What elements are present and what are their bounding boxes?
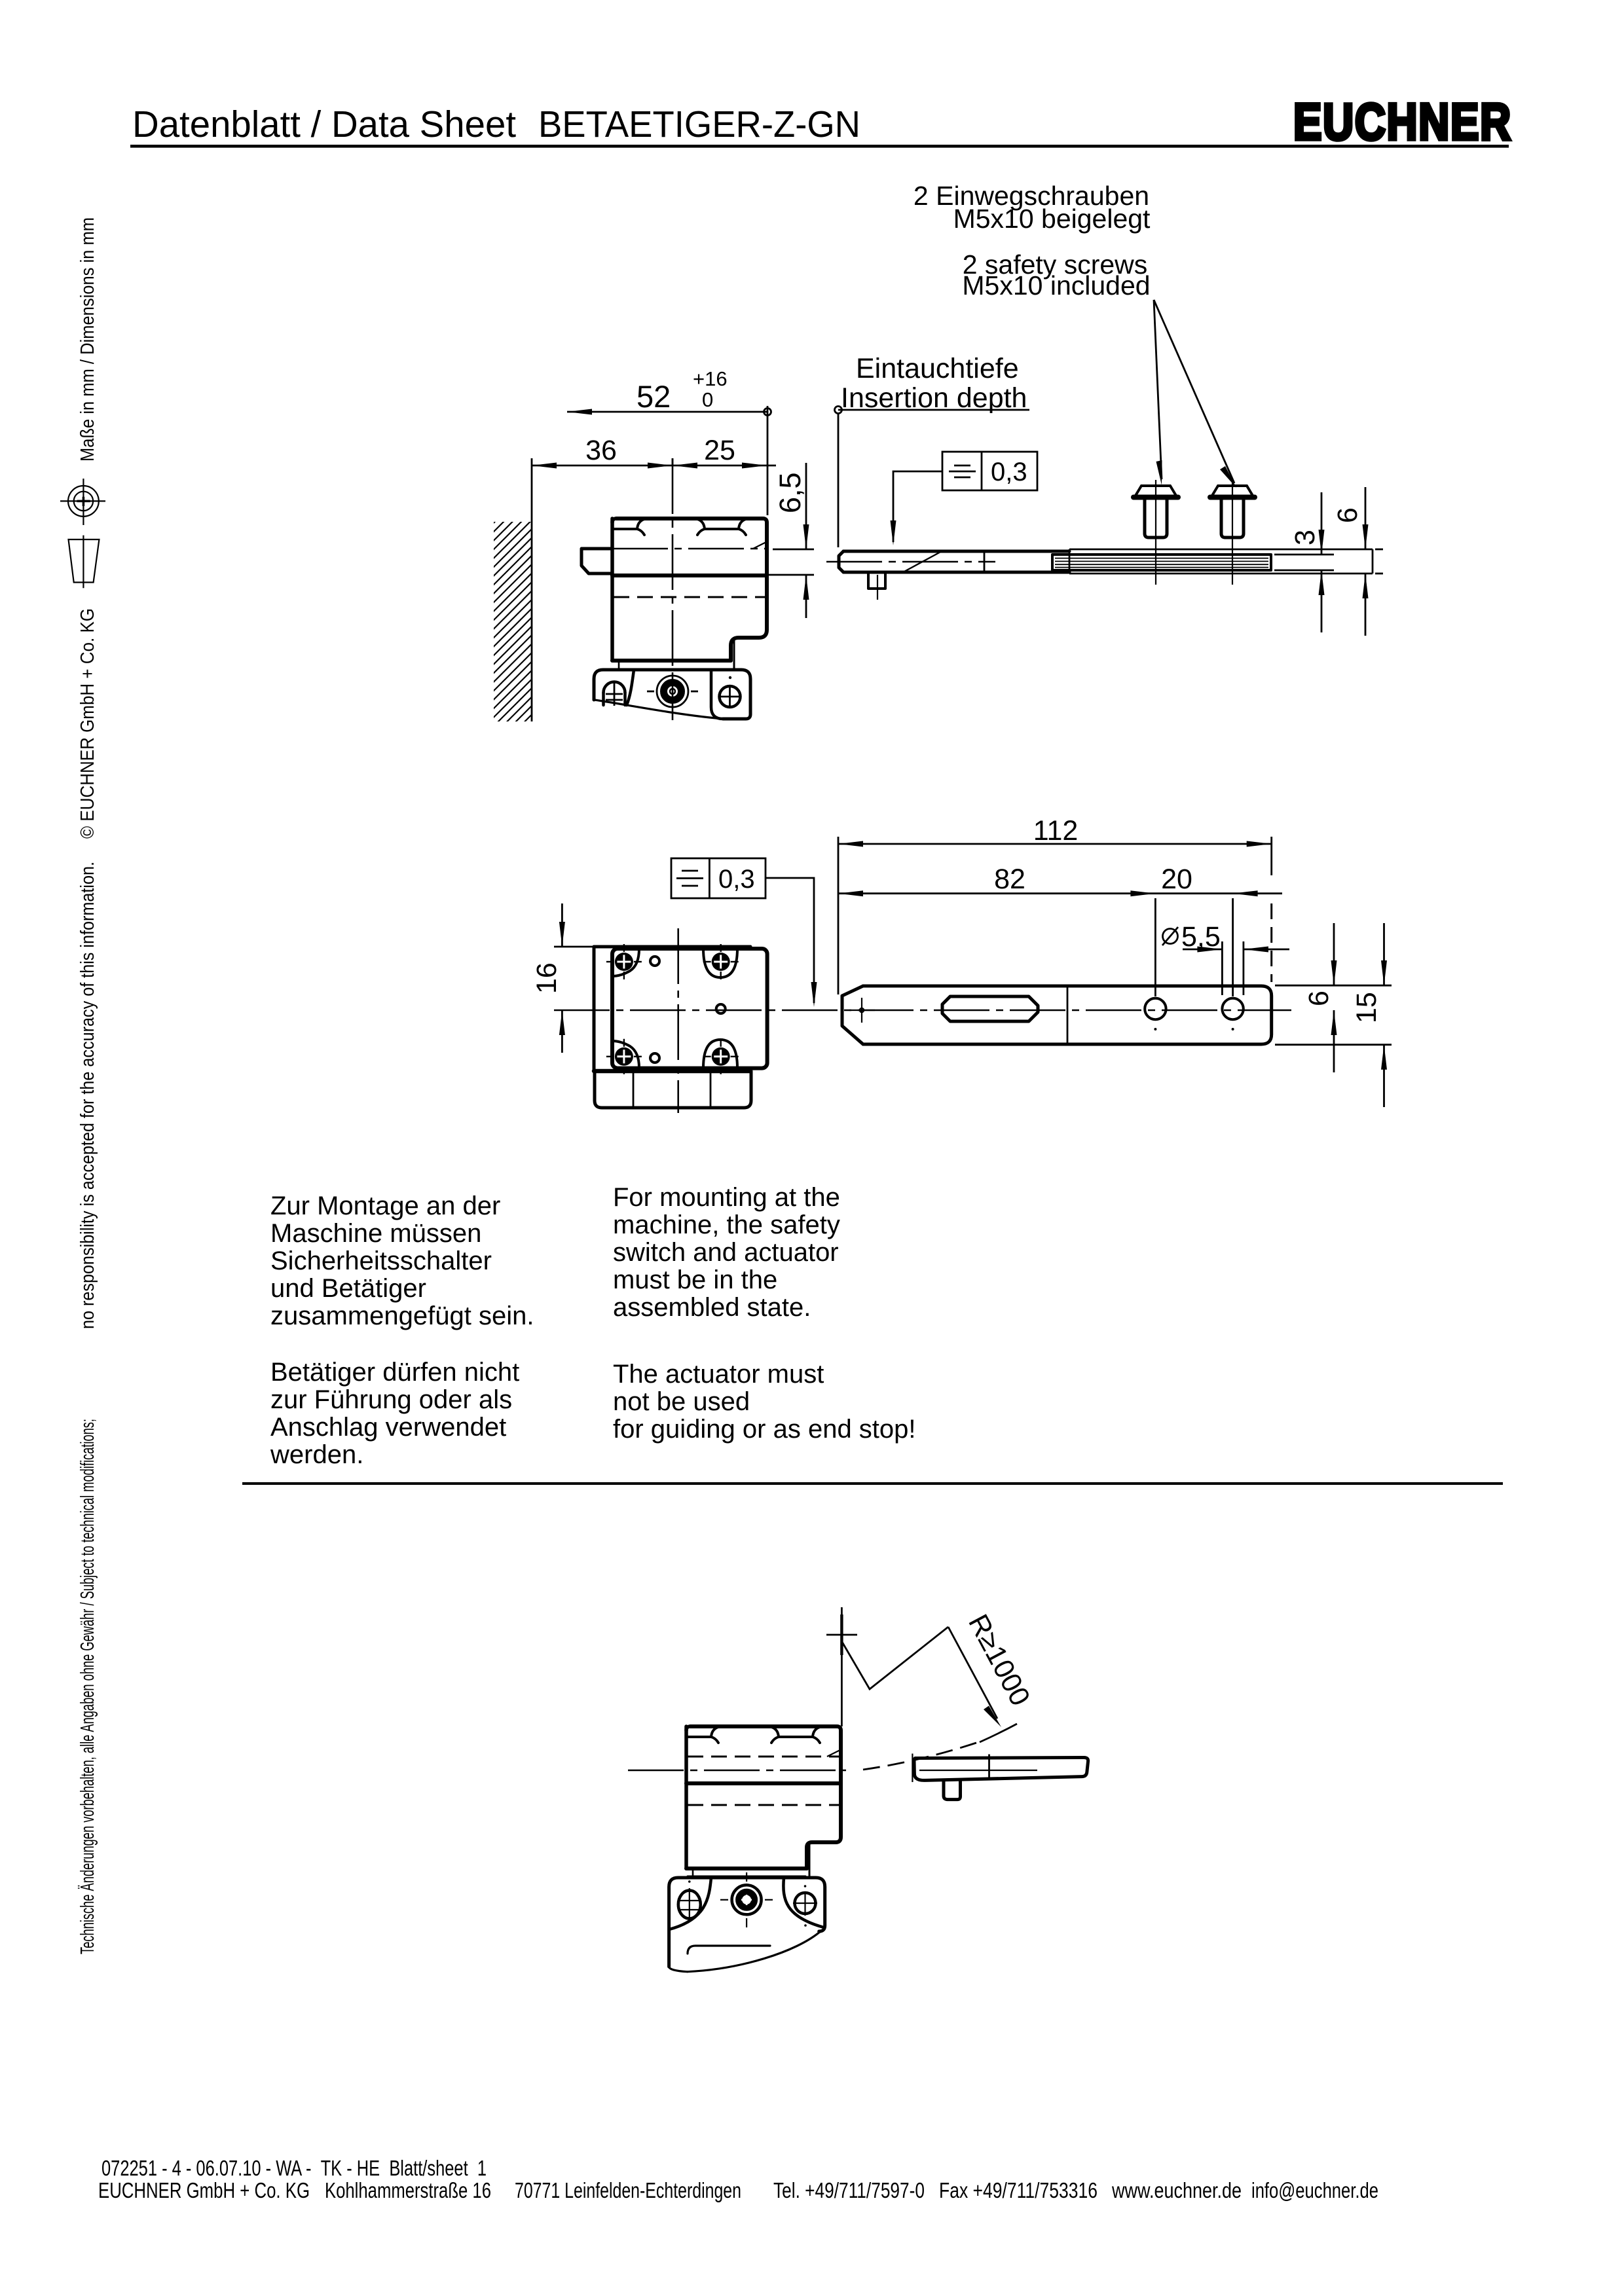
svg-text:For mounting at the: For mounting at the — [613, 1183, 840, 1212]
svg-text:Technische Änderungen vorbehal: Technische Änderungen vorbehalten, alle … — [77, 1419, 98, 1954]
svg-text:112: 112 — [1033, 815, 1079, 847]
svg-text:0,3: 0,3 — [718, 865, 755, 894]
svg-text:+16: +16 — [693, 367, 728, 390]
svg-text:6: 6 — [1303, 991, 1335, 1006]
svg-text:www.euchner.de: www.euchner.de — [1111, 2178, 1242, 2202]
svg-text:Kohlhammerstraße 16: Kohlhammerstraße 16 — [325, 2178, 491, 2202]
svg-text:zur Führung oder als: zur Führung oder als — [270, 1385, 512, 1414]
svg-text:for guiding or as end stop!: for guiding or as end stop! — [613, 1415, 916, 1444]
svg-text:Maschine müssen: Maschine müssen — [270, 1219, 481, 1248]
svg-text:not be used: not be used — [613, 1387, 750, 1416]
svg-text:6,5: 6,5 — [773, 472, 807, 513]
svg-text:0,3: 0,3 — [991, 458, 1027, 486]
svg-text:werden.: werden. — [270, 1440, 363, 1469]
svg-text:0: 0 — [702, 388, 713, 411]
svg-text:5,5: 5,5 — [1181, 921, 1221, 953]
svg-text:82: 82 — [994, 864, 1025, 895]
svg-text:Eintauchtiefe: Eintauchtiefe — [856, 353, 1019, 384]
svg-text:Betätiger dürfen nicht: Betätiger dürfen nicht — [270, 1358, 519, 1387]
svg-text:Maße in mm / Dimensions in mm: Maße in mm / Dimensions in mm — [77, 217, 98, 462]
svg-text:25: 25 — [704, 435, 735, 466]
svg-text:Tel. +49/711/7597-0: Tel. +49/711/7597-0 — [773, 2178, 925, 2202]
svg-text:15: 15 — [1351, 992, 1382, 1023]
svg-text:16: 16 — [531, 962, 563, 994]
svg-text:must be in the: must be in the — [613, 1266, 777, 1294]
svg-text:3: 3 — [1289, 530, 1321, 545]
svg-text:EUCHNER: EUCHNER — [1293, 93, 1512, 151]
svg-text:072251 - 4 - 06.07.10 - WA -: 072251 - 4 - 06.07.10 - WA - TK - HE Bla… — [101, 2156, 487, 2180]
svg-text:switch and actuator: switch and actuator — [613, 1238, 839, 1267]
svg-text:Sicherheitsschalter: Sicherheitsschalter — [270, 1247, 492, 1275]
svg-text:Anschlag verwendet: Anschlag verwendet — [270, 1413, 506, 1442]
svg-text:zusammengefügt sein.: zusammengefügt sein. — [270, 1302, 534, 1330]
svg-text:Datenblatt / Data Sheet: Datenblatt / Data Sheet — [132, 103, 516, 145]
svg-text:70771 Leinfelden-Echterdingen: 70771 Leinfelden-Echterdingen — [515, 2178, 741, 2202]
svg-text:The actuator must: The actuator must — [613, 1360, 824, 1389]
svg-text:M5x10 included: M5x10 included — [962, 270, 1150, 301]
svg-text:52: 52 — [637, 379, 671, 414]
svg-text:6: 6 — [1332, 507, 1363, 523]
svg-text:machine, the safety: machine, the safety — [613, 1211, 840, 1239]
svg-text:BETAETIGER-Z-GN: BETAETIGER-Z-GN — [538, 103, 860, 145]
svg-text:EUCHNER GmbH + Co. KG: EUCHNER GmbH + Co. KG — [98, 2178, 310, 2202]
svg-text:M5x10 beigelegt: M5x10 beigelegt — [953, 204, 1151, 234]
svg-text:20: 20 — [1161, 864, 1192, 895]
svg-text:36: 36 — [585, 435, 617, 466]
svg-text:© EUCHNER GmbH + Co. KG: © EUCHNER GmbH + Co. KG — [77, 608, 98, 839]
svg-text:no responsibility is accepted: no responsibility is accepted for the ac… — [77, 862, 98, 1329]
svg-text:assembled state.: assembled state. — [613, 1293, 811, 1322]
svg-text:und Betätiger: und Betätiger — [270, 1274, 426, 1303]
svg-text:Fax +49/711/753316: Fax +49/711/753316 — [939, 2178, 1098, 2202]
svg-text:Zur Montage an der: Zur Montage an der — [270, 1192, 500, 1220]
svg-text:info@euchner.de: info@euchner.de — [1251, 2178, 1378, 2202]
